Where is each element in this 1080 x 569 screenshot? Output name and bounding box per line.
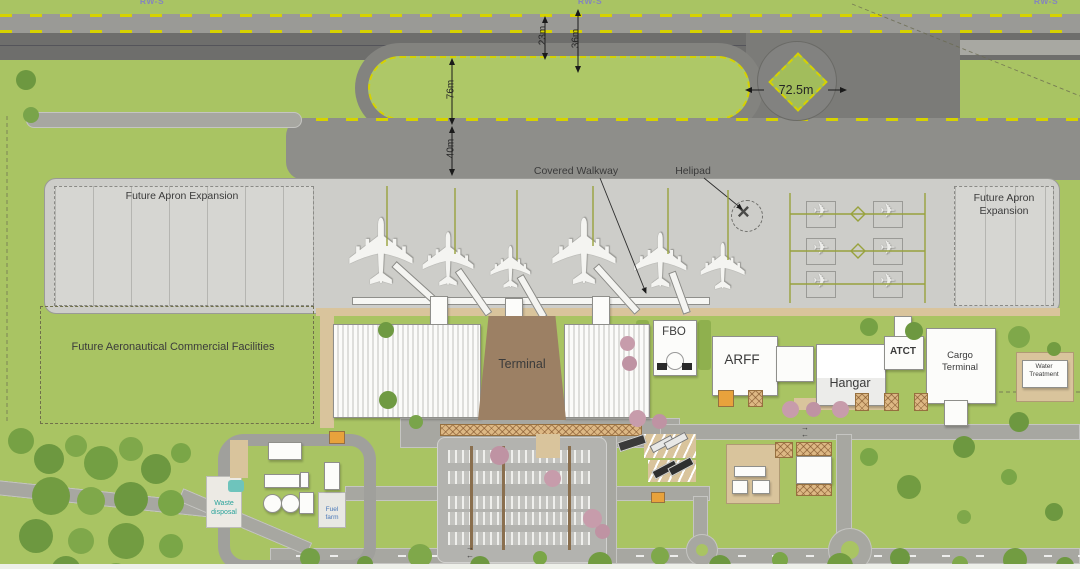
hangar-label: Hangar (814, 376, 886, 391)
aircraft-icon: ✈ (880, 239, 896, 258)
parking-tree-line (470, 446, 473, 550)
traffic-arrow-icon: ← (463, 551, 477, 561)
fuel-pump-building (299, 492, 314, 514)
future-commercial-label: Future Aeronautical Commercial Facilitie… (62, 341, 284, 354)
compound-building (264, 474, 300, 488)
fbo-hedge (698, 320, 711, 370)
service-road-northwest (26, 112, 302, 128)
ga-parking-stand: ✈ (806, 238, 836, 265)
cargo-terminal-label: Cargo Terminal (934, 350, 986, 373)
infield-oval-taxiway (368, 56, 750, 120)
fbo-entry (657, 363, 667, 370)
fuel-farm-label: Fuel farm (320, 506, 344, 522)
aircraft-icon: ✈ (413, 228, 487, 290)
compound-strip (230, 440, 248, 478)
terminal-pier-stub (592, 296, 610, 326)
cargo-link-road (836, 434, 852, 534)
terminal-label: Terminal (470, 357, 574, 372)
canopy-pad (855, 393, 869, 411)
terminal-west-wing (333, 324, 481, 418)
sheet-edge (0, 564, 1080, 569)
equipment-pad (718, 390, 734, 407)
future-commercial-area (40, 306, 314, 424)
support-building (732, 480, 748, 494)
future-apron-left (54, 186, 314, 306)
traffic-arrow-icon: ← (798, 430, 812, 440)
aircraft-icon: ✈ (880, 272, 896, 291)
canopy-pad (748, 390, 763, 407)
roundabout-island (696, 544, 708, 556)
canopy-pad (914, 393, 928, 411)
compound-building (300, 472, 309, 488)
dimension-turnpad-width: 72.5m (766, 83, 826, 97)
fuel-tank (263, 494, 282, 513)
fuel-tank (281, 494, 300, 513)
access-road-east (660, 424, 1080, 440)
ga-parking-stand: ✈ (806, 201, 836, 228)
tree-cluster (378, 322, 394, 338)
covered-walkway-label: Covered Walkway (506, 165, 646, 178)
runway-designator: RW-S (1026, 0, 1066, 6)
equipment-pad (329, 431, 345, 444)
dimension-taxiway-separation: 40m (446, 134, 457, 164)
compound-building (268, 442, 302, 460)
access-road-south (270, 548, 1080, 564)
ga-parking-stand: ✈ (873, 271, 903, 298)
taxiway-edge-marking (286, 118, 1080, 121)
ornamental-tree-cluster (620, 336, 635, 351)
fbo-entry (682, 363, 692, 370)
arff-label: ARFF (712, 352, 772, 368)
water-treatment-label: Water Treatment (1023, 363, 1065, 379)
support-building (796, 456, 832, 484)
compound-building (324, 462, 340, 490)
dimension-runway-shoulder: 36m (571, 24, 582, 54)
tree-cluster (8, 428, 34, 454)
dimension-infield-width: 76m (446, 75, 457, 105)
aircraft-icon: ✈ (483, 243, 541, 292)
aircraft-icon: ✈ (692, 239, 756, 293)
parking-tree-line (568, 446, 571, 550)
runway-designator: RW-S (132, 0, 172, 6)
hangar-building (816, 344, 886, 406)
roundabout-island (841, 541, 859, 559)
taxiway-edge-marking (0, 14, 1080, 17)
arff-canopy (776, 346, 814, 382)
helipad-label: Helipad (662, 165, 724, 178)
forecourt-walk (536, 434, 560, 458)
cargo-dock (944, 400, 968, 426)
waste-disposal-label: Waste disposal (206, 500, 242, 517)
aircraft-icon: ✈ (813, 202, 829, 221)
aircraft-icon: ✈ (541, 212, 633, 289)
canopy-pad (775, 442, 793, 458)
fbo-label: FBO (653, 325, 695, 339)
tree-cluster (860, 318, 878, 336)
support-building (734, 466, 766, 477)
ga-parking-stand: ✈ (873, 238, 903, 265)
future-apron-right-label: Future Apron Expansion (952, 192, 1056, 218)
future-apron-left-label: Future Apron Expansion (122, 190, 242, 203)
helicopter-icon: × (737, 199, 750, 225)
atct-label: ATCT (884, 346, 922, 358)
aircraft-icon: ✈ (813, 272, 829, 291)
parking-tree-line (502, 446, 505, 550)
aircraft-icon: ✈ (880, 202, 896, 221)
terminal-east-wing (564, 324, 650, 418)
ga-parking-stand: ✈ (806, 271, 836, 298)
canopy-pad (796, 442, 832, 456)
canopy-pad (796, 484, 832, 496)
dimension-runway-width: 23m (538, 21, 549, 51)
aircraft-icon: ✈ (813, 239, 829, 258)
waste-pond (228, 480, 244, 492)
support-building (752, 480, 770, 494)
terminal-pier-stub (430, 296, 448, 326)
equipment-pad (651, 492, 665, 503)
ga-parking-stand: ✈ (873, 201, 903, 228)
runway-designator: RW-S (570, 0, 610, 6)
terminal-west-path (320, 316, 334, 428)
canopy-pad (884, 393, 899, 411)
airport-master-plan: ✈ ✈ ✈ ✈ ✈ ✈ × ✈ ✈ ✈ ✈ ✈ ✈ (0, 0, 1080, 569)
